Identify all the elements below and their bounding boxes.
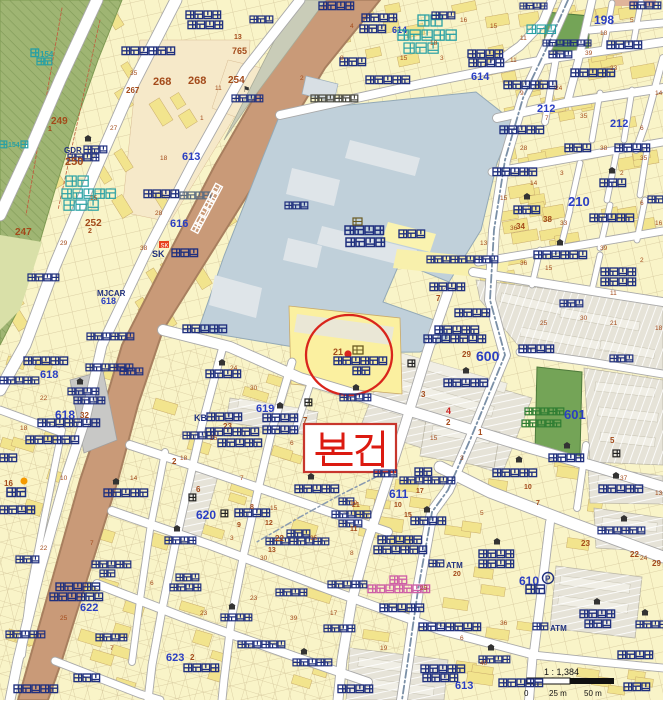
svg-text:SK: SK xyxy=(152,249,165,259)
svg-text:20: 20 xyxy=(453,571,461,578)
svg-text:2: 2 xyxy=(172,457,177,466)
svg-text:618: 618 xyxy=(101,296,116,306)
svg-text:14: 14 xyxy=(130,475,138,482)
svg-text:212: 212 xyxy=(537,103,555,115)
svg-text:210: 210 xyxy=(568,194,590,209)
svg-text:2: 2 xyxy=(88,228,92,235)
svg-text:8: 8 xyxy=(350,550,354,557)
svg-text:6: 6 xyxy=(150,580,154,587)
svg-text:35: 35 xyxy=(640,155,648,162)
svg-text:13: 13 xyxy=(268,547,276,554)
svg-text:6: 6 xyxy=(640,200,644,207)
svg-text:5: 5 xyxy=(630,17,634,24)
svg-text:198: 198 xyxy=(594,13,614,27)
svg-text:28: 28 xyxy=(155,210,163,217)
svg-text:6: 6 xyxy=(460,635,464,642)
svg-text:24: 24 xyxy=(230,365,238,372)
svg-text:ATM: ATM xyxy=(550,624,567,633)
svg-text:618: 618 xyxy=(40,369,58,381)
svg-text:23: 23 xyxy=(200,610,208,617)
svg-text:33: 33 xyxy=(560,220,568,227)
svg-text:35: 35 xyxy=(580,113,588,120)
svg-text:7: 7 xyxy=(436,294,441,303)
svg-text:3: 3 xyxy=(560,170,564,177)
svg-text:5: 5 xyxy=(610,436,615,445)
svg-text:7: 7 xyxy=(536,500,540,507)
svg-text:247: 247 xyxy=(15,227,32,238)
svg-text:36: 36 xyxy=(520,260,528,267)
svg-text:38: 38 xyxy=(140,245,148,252)
svg-text:21: 21 xyxy=(610,320,618,327)
svg-text:24: 24 xyxy=(555,85,563,92)
svg-text:2: 2 xyxy=(300,75,304,82)
svg-text:23: 23 xyxy=(581,539,590,548)
svg-text:622: 622 xyxy=(80,602,98,614)
svg-text:22: 22 xyxy=(630,550,639,559)
svg-text:36: 36 xyxy=(510,225,518,232)
svg-text:35: 35 xyxy=(130,70,138,77)
svg-text:25: 25 xyxy=(210,435,218,442)
svg-text:6: 6 xyxy=(196,485,201,494)
svg-text:15: 15 xyxy=(404,512,412,519)
svg-text:16: 16 xyxy=(460,17,468,24)
svg-text:22: 22 xyxy=(275,534,284,543)
svg-text:25: 25 xyxy=(60,615,68,622)
svg-text:13: 13 xyxy=(234,34,242,41)
svg-text:25 m: 25 m xyxy=(549,689,567,698)
svg-text:15: 15 xyxy=(90,195,98,202)
svg-text:613: 613 xyxy=(455,680,473,692)
svg-text:18: 18 xyxy=(600,30,608,37)
svg-text:1 : 1,384: 1 : 1,384 xyxy=(544,667,579,677)
svg-text:35: 35 xyxy=(310,535,318,542)
svg-text:2: 2 xyxy=(446,418,451,427)
svg-text:38: 38 xyxy=(543,215,552,224)
svg-text:23: 23 xyxy=(250,595,258,602)
svg-text:29: 29 xyxy=(462,350,471,359)
svg-text:28: 28 xyxy=(520,145,528,152)
svg-text:12: 12 xyxy=(265,520,273,527)
svg-text:25: 25 xyxy=(420,585,428,592)
svg-text:17: 17 xyxy=(416,488,424,495)
svg-text:16: 16 xyxy=(655,220,663,227)
svg-text:3: 3 xyxy=(460,455,464,462)
svg-text:29: 29 xyxy=(652,559,661,568)
svg-text:7: 7 xyxy=(110,645,114,652)
svg-text:30: 30 xyxy=(260,555,268,562)
svg-text:17: 17 xyxy=(330,610,338,617)
svg-text:39: 39 xyxy=(290,615,298,622)
svg-text:268: 268 xyxy=(153,76,171,88)
svg-text:⚑: ⚑ xyxy=(243,85,250,94)
svg-text:18: 18 xyxy=(160,155,168,162)
svg-text:14: 14 xyxy=(530,180,538,187)
svg-text:19: 19 xyxy=(350,500,358,507)
svg-text:30: 30 xyxy=(580,315,588,322)
svg-text:1: 1 xyxy=(478,428,483,437)
svg-text:8: 8 xyxy=(340,55,344,62)
svg-text:30: 30 xyxy=(250,385,258,392)
svg-text:16: 16 xyxy=(4,479,13,488)
svg-text:14: 14 xyxy=(655,90,663,97)
svg-text:250: 250 xyxy=(65,156,83,168)
svg-text:29: 29 xyxy=(60,240,68,247)
svg-text:11: 11 xyxy=(215,85,222,92)
svg-text:KB: KB xyxy=(194,413,207,423)
svg-text:11: 11 xyxy=(610,290,617,297)
svg-text:9: 9 xyxy=(237,522,241,529)
svg-text:616: 616 xyxy=(170,218,188,230)
svg-text:5: 5 xyxy=(480,510,484,517)
svg-text:7: 7 xyxy=(240,475,244,482)
svg-text:4: 4 xyxy=(350,23,354,30)
svg-text:620: 620 xyxy=(196,508,216,522)
svg-text:7: 7 xyxy=(90,540,94,547)
svg-text:268: 268 xyxy=(188,75,206,87)
svg-text:25: 25 xyxy=(540,320,548,327)
svg-text:6: 6 xyxy=(640,125,644,132)
svg-text:154: 154 xyxy=(8,142,20,149)
svg-text:7: 7 xyxy=(303,416,308,425)
svg-text:19: 19 xyxy=(380,645,388,652)
svg-text:22: 22 xyxy=(40,545,48,552)
svg-text:212: 212 xyxy=(610,118,628,130)
svg-text:23: 23 xyxy=(610,65,618,72)
svg-text:0: 0 xyxy=(524,689,529,698)
svg-text:18: 18 xyxy=(20,425,28,432)
svg-text:18: 18 xyxy=(180,455,188,462)
svg-text:11: 11 xyxy=(350,526,358,533)
svg-text:7: 7 xyxy=(545,115,549,122)
svg-text:3: 3 xyxy=(421,390,426,399)
svg-text:15: 15 xyxy=(430,435,438,442)
svg-text:15: 15 xyxy=(545,265,553,272)
svg-text:40: 40 xyxy=(480,660,488,667)
svg-text:10: 10 xyxy=(524,484,532,491)
svg-text:619: 619 xyxy=(256,403,274,415)
svg-text:21: 21 xyxy=(333,347,343,357)
svg-text:4: 4 xyxy=(446,406,451,416)
svg-text:15: 15 xyxy=(500,195,508,202)
svg-text:15: 15 xyxy=(400,55,408,62)
svg-text:611: 611 xyxy=(389,487,409,501)
svg-text:15: 15 xyxy=(490,23,498,30)
svg-text:11: 11 xyxy=(510,57,517,64)
svg-text:601: 601 xyxy=(564,407,586,422)
svg-text:13: 13 xyxy=(655,490,663,497)
svg-text:614: 614 xyxy=(471,71,490,83)
svg-text:2: 2 xyxy=(620,170,624,177)
svg-text:27: 27 xyxy=(110,125,118,132)
svg-text:34: 34 xyxy=(516,222,525,231)
svg-text:22: 22 xyxy=(40,395,48,402)
svg-text:9: 9 xyxy=(520,90,524,97)
svg-text:38: 38 xyxy=(600,145,608,152)
svg-text:8: 8 xyxy=(250,504,254,511)
svg-text:10: 10 xyxy=(60,475,68,482)
svg-text:6: 6 xyxy=(290,440,294,447)
svg-text:P: P xyxy=(545,575,551,584)
svg-text:1: 1 xyxy=(48,126,52,133)
svg-text:2: 2 xyxy=(190,653,195,662)
svg-text:37: 37 xyxy=(620,475,628,482)
svg-text:600: 600 xyxy=(476,348,500,364)
svg-text:3: 3 xyxy=(230,535,234,542)
svg-text:18: 18 xyxy=(430,40,438,47)
svg-text:623: 623 xyxy=(166,652,184,664)
svg-text:267: 267 xyxy=(126,86,140,95)
svg-text:3: 3 xyxy=(440,55,444,62)
svg-text:39: 39 xyxy=(585,50,593,57)
svg-text:11: 11 xyxy=(520,35,527,42)
svg-text:ATM: ATM xyxy=(446,561,463,570)
svg-text:15: 15 xyxy=(270,505,278,512)
svg-text:765: 765 xyxy=(232,46,247,56)
svg-text:18: 18 xyxy=(655,325,663,332)
svg-text:39: 39 xyxy=(600,245,608,252)
svg-text:1: 1 xyxy=(200,115,204,122)
svg-text:13: 13 xyxy=(480,240,488,247)
svg-text:36: 36 xyxy=(500,620,508,627)
svg-text:613: 613 xyxy=(182,151,200,163)
svg-text:24: 24 xyxy=(640,555,648,562)
svg-text:249: 249 xyxy=(51,116,68,127)
svg-text:50 m: 50 m xyxy=(584,689,602,698)
svg-text:2: 2 xyxy=(640,257,644,264)
svg-text:10: 10 xyxy=(394,502,402,509)
